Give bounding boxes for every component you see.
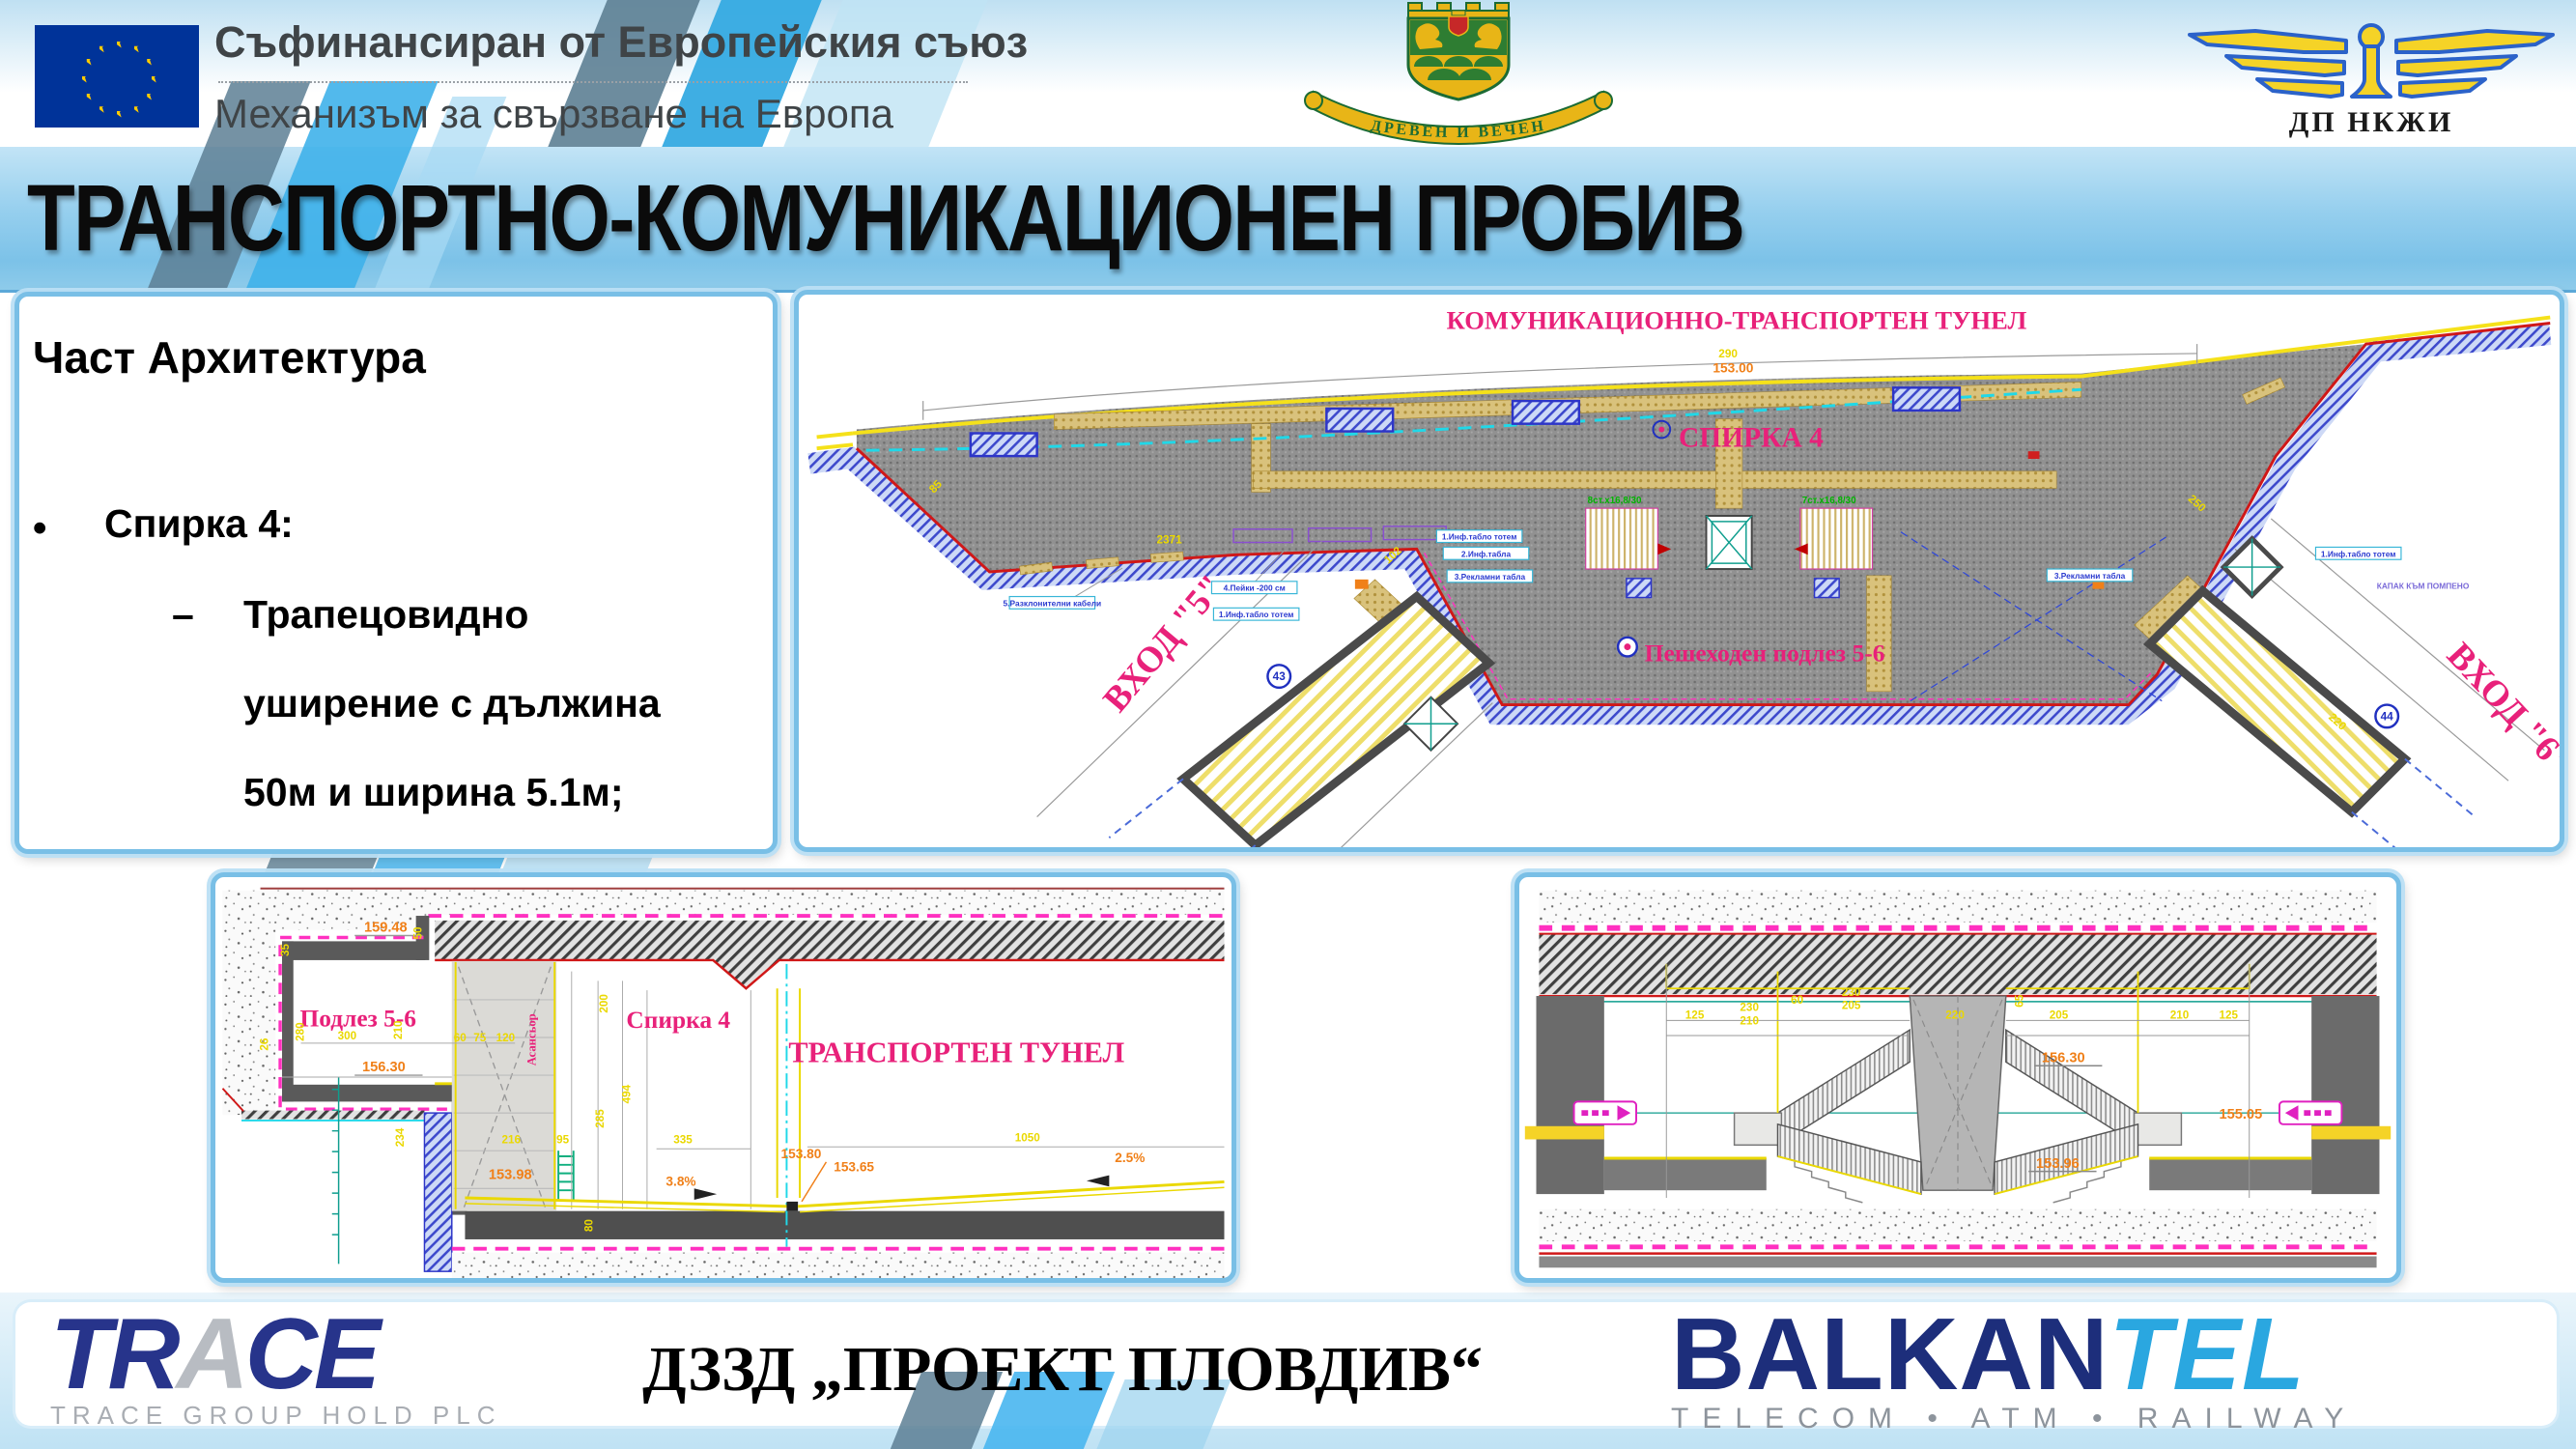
sl-dim: 26 [258, 1037, 270, 1051]
sl-speckle-bottom [452, 1253, 1225, 1278]
balkantel-tagline: TELECOM • ATM • RAILWAY [1671, 1403, 2550, 1435]
sub-bullet-line2: уширение с дължина [243, 681, 661, 726]
sl-dim: 300 [338, 1030, 357, 1042]
sl-tick-line [332, 1077, 339, 1264]
sr-dim: 65 [2013, 994, 2025, 1008]
sr-dim: 125 [1685, 1009, 1705, 1021]
sl-dim: 80 [582, 1219, 595, 1233]
svg-text:3.Рекламни табла: 3.Рекламни табла [1455, 572, 1526, 582]
consortium-name: ДЗЗД „ПРОЕКТ ПЛОВДИВ“ [599, 1333, 1526, 1406]
trace-logo: TRACE TRACE GROUP HOLD PLC [50, 1308, 501, 1431]
sr-base [1539, 1257, 2376, 1268]
header-divider [218, 81, 968, 83]
eu-funding-line2: Механизъм за свързване на Европа [214, 91, 893, 137]
svg-text:1.Инф.табло тотем: 1.Инф.табло тотем [2321, 549, 2396, 558]
sub-bullet-line1: Трапецовидно [243, 592, 528, 638]
balkantel-part2: TEL [2109, 1297, 2306, 1411]
plovdiv-coat-of-arms-icon: ДРЕВЕН И ВЕЧЕН [1296, 2, 1621, 147]
sl-dim: 494 [620, 1084, 633, 1103]
plan-badge5: 43 [1273, 670, 1287, 683]
sr-arrow-badge-right [2279, 1101, 2341, 1123]
trace-subtitle: TRACE GROUP HOLD PLC [50, 1401, 501, 1431]
sr-speckle-bottom [1539, 1209, 2376, 1241]
sr-dim: 205 [1842, 1000, 1861, 1012]
stair-note: 7ст.х16,8/30 [1802, 496, 1856, 506]
sr-dim: 125 [2219, 1009, 2238, 1021]
sl-ceiling-slab [435, 921, 1224, 960]
sl-dim: 234 [394, 1127, 407, 1147]
sl-elevator-label: Асансьор [525, 1013, 539, 1065]
sl-dim: 35 [279, 944, 292, 957]
sr-yellow-right [2311, 1126, 2391, 1140]
plan-station-label: СПИРКА 4 [1679, 422, 1824, 453]
sl-slope-left: 3.8% [665, 1174, 695, 1188]
trace-part1: TR [50, 1298, 177, 1410]
sr-elev: 153.96 [2036, 1156, 2080, 1172]
sl-dim: 60 [454, 1032, 467, 1044]
sr-dim: 230 [1740, 1002, 1759, 1014]
sl-pier [424, 1113, 451, 1271]
svg-text:5.Разклонителни кабели: 5.Разклонителни кабели [1004, 598, 1102, 608]
sl-tunnel-label: ТРАНСПОРТЕН ТУНЕЛ [788, 1036, 1124, 1068]
plan-dim: 2371 [1156, 533, 1182, 546]
slide-title: ТРАНСПОРТНО-КОМУНИКАЦИОНЕН ПРОБИВ [27, 147, 1743, 290]
sr-dim: 230 [1842, 986, 1861, 999]
svg-text:1.Инф.табло тотем: 1.Инф.табло тотем [1442, 532, 1517, 542]
slide: Съфинансиран от Европейския съюз Механиз… [0, 0, 2576, 1449]
plan-title: КОМУНИКАЦИОННО-ТРАНСПОРТЕН ТУНЕЛ [1447, 305, 2027, 334]
svg-text:1.Инф.табло тотем: 1.Инф.табло тотем [1219, 610, 1294, 619]
entrance6-corridor [2149, 591, 2476, 847]
sl-elev: 153.98 [489, 1167, 532, 1182]
sl-dim: 1050 [1015, 1131, 1041, 1144]
sl-dim: 335 [673, 1133, 693, 1146]
trace-part3: CE [245, 1298, 377, 1410]
sub-bullet-line3: 50м и ширина 5.1м; [243, 770, 623, 815]
plan-dim: 290 [1718, 348, 1738, 360]
sr-yellow-left [1525, 1126, 1604, 1140]
sr-elev: 155.05 [2219, 1107, 2262, 1122]
trace-part2: A [177, 1298, 245, 1410]
bullet-stop4: Спирка 4: [104, 501, 294, 547]
sr-dim: 210 [2170, 1009, 2190, 1021]
entrance6-label: ВХОД "6" [2439, 636, 2560, 783]
tunnel-plan-panel: КОМУНИКАЦИОННО-ТРАНСПОРТЕН ТУНЕЛ СПИРКА … [794, 290, 2564, 852]
svg-text:4.Пейки -200 см: 4.Пейки -200 см [1224, 583, 1286, 593]
sl-dim: 200 [598, 994, 610, 1013]
sr-speckle-top [1539, 891, 2376, 923]
railway-logo-icon: ДП НКЖИ [2173, 6, 2569, 141]
balkantel-part1: BALKAN [1671, 1297, 2109, 1411]
dash-marker: – [172, 592, 194, 638]
sl-speckle-left2 [222, 930, 275, 1115]
sl-dim: 210 [392, 1020, 405, 1039]
sl-elev: 156.30 [362, 1060, 406, 1075]
sl-dim: 50 [412, 926, 425, 940]
sl-slope-right: 2.5% [1115, 1151, 1145, 1165]
sl-station-label: Спирка 4 [626, 1007, 730, 1034]
sr-dim: 220 [1945, 1009, 1965, 1021]
sl-dim: 216 [502, 1133, 522, 1146]
section-left-drawing: Подлез 5-6 Спирка 4 ТРАНСПОРТЕН ТУНЕЛ Ас… [215, 877, 1231, 1278]
sr-ceiling-slab [1539, 934, 2376, 994]
sr-elev: 156.30 [2042, 1050, 2085, 1065]
railway-name: ДП НКЖИ [2289, 106, 2454, 138]
sr-dim: 60 [1791, 994, 1804, 1007]
sl-elev: 153.65 [834, 1160, 874, 1175]
sr-dim: 210 [1740, 1014, 1759, 1027]
section-heading: Част Архитектура [33, 331, 426, 384]
svg-text:2.Инф.табла: 2.Инф.табла [1461, 549, 1512, 558]
section-right-drawing: 156.30 155.05 153.96 125 230 210 60 230 … [1519, 877, 2396, 1278]
sl-dim: 75 [473, 1032, 487, 1044]
balkantel-logo: BALKANTEL TELECOM • ATM • RAILWAY [1671, 1306, 2550, 1435]
stair-note: 8ст.х16,8/30 [1588, 496, 1642, 506]
tunnel-plan-drawing: КОМУНИКАЦИОННО-ТРАНСПОРТЕН ТУНЕЛ СПИРКА … [799, 295, 2560, 847]
sr-dim: 205 [2050, 1009, 2069, 1021]
eu-funding-line1: Съфинансиран от Европейския съюз [214, 17, 1028, 68]
sl-elev: 159.48 [364, 921, 408, 936]
section-right-panel: 156.30 155.05 153.96 125 230 210 60 230 … [1514, 872, 2401, 1283]
sl-notch [713, 960, 778, 988]
sr-arrow-badge-left [1574, 1101, 1636, 1123]
svg-text:3.Рекламни табла: 3.Рекламни табла [2054, 571, 2126, 581]
plan-elevation: 153.00 [1713, 361, 1753, 376]
sl-dim: 95 [556, 1133, 570, 1146]
svg-text:КАПАК КЪМ ПОМПЕНО: КАПАК КЪМ ПОМПЕНО [2377, 582, 2470, 591]
plan-underpass-label: Пешеходен подлез 5-6 [1645, 639, 1885, 667]
plan-badge6: 44 [2381, 710, 2394, 723]
sl-dim: 280 [294, 1022, 306, 1041]
section-left-panel: Подлез 5-6 Спирка 4 ТРАНСПОРТЕН ТУНЕЛ Ас… [211, 872, 1236, 1283]
sl-dim: 120 [496, 1032, 516, 1044]
sl-elev: 153.80 [781, 1147, 822, 1161]
architecture-text-panel: Част Архитектура • Спирка 4: – Трапецови… [14, 292, 778, 854]
bullet-marker: • [33, 505, 46, 551]
eu-flag-icon [35, 25, 199, 128]
sl-dim: 285 [594, 1109, 607, 1128]
